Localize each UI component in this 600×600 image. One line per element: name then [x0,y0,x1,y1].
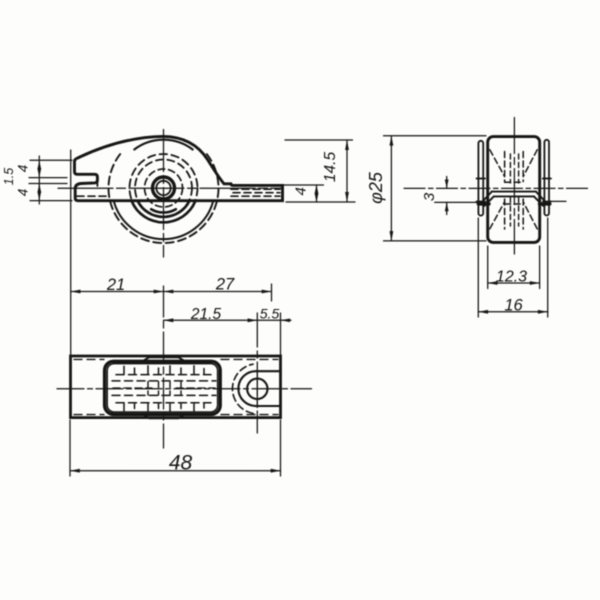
svg-text:5.5: 5.5 [260,306,280,322]
svg-text:4: 4 [293,187,310,195]
svg-text:3: 3 [421,192,438,201]
svg-text:21: 21 [106,276,125,294]
svg-text:48: 48 [169,452,193,475]
svg-text:21.5: 21.5 [190,306,222,323]
svg-text:27: 27 [215,276,235,294]
svg-text:φ25: φ25 [366,171,386,204]
svg-text:1.5: 1.5 [2,168,16,185]
svg-text:4: 4 [16,189,31,197]
svg-text:4: 4 [16,165,31,173]
svg-text:14.5: 14.5 [322,152,339,183]
svg-text:16: 16 [504,297,523,315]
svg-text:12.3: 12.3 [496,269,527,286]
